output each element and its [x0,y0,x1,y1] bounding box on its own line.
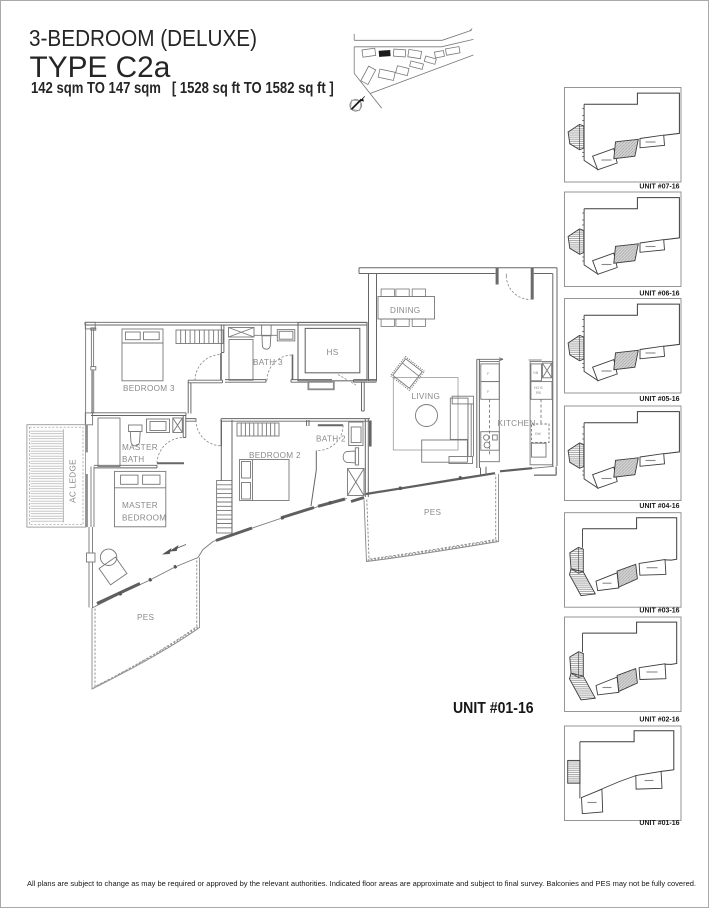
svg-text:BEDROOM: BEDROOM [122,513,166,522]
svg-text:MASTER: MASTER [122,443,158,452]
svg-text:LIVING: LIVING [412,392,441,401]
svg-text:DINING: DINING [390,306,420,315]
svg-text:HO B: HO B [534,386,543,390]
svg-text:DW: DW [535,432,542,436]
svg-text:PES: PES [137,613,155,622]
svg-text:F: F [487,372,489,376]
svg-text:AC LEDGE: AC LEDGE [69,459,78,503]
svg-text:UNIT #04-16: UNIT #04-16 [639,503,679,510]
svg-text:BATH 2: BATH 2 [316,435,346,444]
svg-text:PES: PES [424,508,442,517]
svg-text:BEDROOM 3: BEDROOM 3 [123,384,175,393]
svg-text:UNIT #05-16: UNIT #05-16 [639,396,679,403]
svg-text:RB: RB [536,391,542,395]
svg-text:HS: HS [327,348,339,357]
svg-text:MASTER: MASTER [122,501,158,510]
svg-text:UNIT #03-16: UNIT #03-16 [639,608,679,615]
svg-text:F: F [487,390,489,394]
svg-text:UNIT #07-16: UNIT #07-16 [639,184,679,191]
svg-text:BATH: BATH [122,455,144,464]
svg-text:UNIT #06-16: UNIT #06-16 [639,291,679,298]
svg-text:UNIT #01-16: UNIT #01-16 [639,820,679,827]
svg-text:UNIT #02-16: UNIT #02-16 [639,717,679,724]
svg-text:OB: OB [533,371,539,375]
svg-text:BEDROOM 2: BEDROOM 2 [249,451,301,460]
